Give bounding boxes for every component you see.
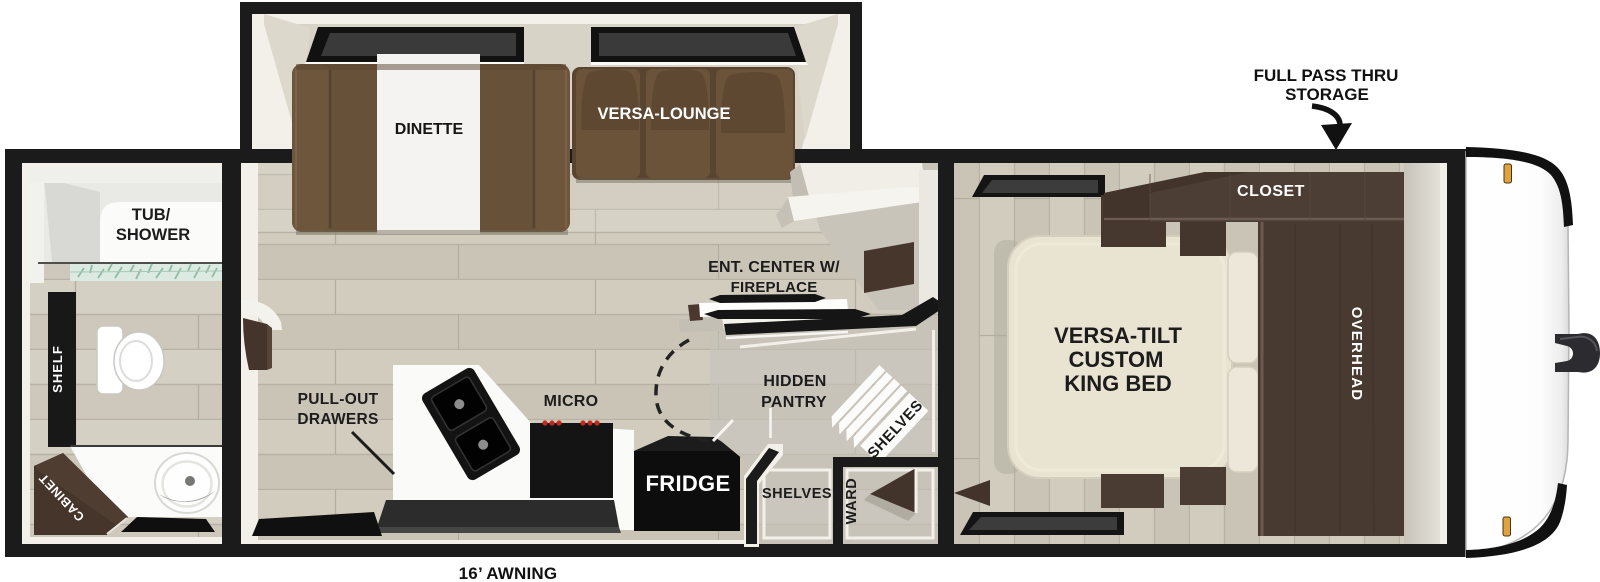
svg-text:PANTRY: PANTRY — [761, 394, 827, 411]
svg-text:DRAWERS: DRAWERS — [297, 411, 378, 428]
svg-text:VERSA-LOUNGE: VERSA-LOUNGE — [598, 105, 731, 123]
svg-text:SHELF: SHELF — [50, 345, 65, 393]
svg-text:WARD: WARD — [844, 478, 860, 525]
svg-text:HIDDEN: HIDDEN — [763, 373, 826, 390]
svg-text:FIREPLACE: FIREPLACE — [731, 279, 818, 296]
svg-text:16’ AWNING: 16’ AWNING — [459, 564, 558, 582]
svg-text:FRIDGE: FRIDGE — [646, 471, 731, 496]
svg-text:TUB/: TUB/ — [132, 206, 171, 224]
svg-text:DINETTE: DINETTE — [395, 121, 464, 138]
svg-text:MICRO: MICRO — [544, 393, 599, 410]
svg-text:OVERHEAD: OVERHEAD — [1348, 307, 1365, 402]
svg-text:FULL PASS THRU: FULL PASS THRU — [1254, 66, 1399, 85]
svg-text:SHOWER: SHOWER — [116, 226, 190, 244]
svg-text:KING BED: KING BED — [1064, 371, 1172, 396]
svg-text:CUSTOM: CUSTOM — [1069, 347, 1164, 372]
svg-text:CLOSET: CLOSET — [1237, 183, 1305, 200]
svg-text:SHELVES: SHELVES — [762, 486, 832, 502]
svg-text:VERSA-TILT: VERSA-TILT — [1054, 323, 1182, 348]
svg-text:STORAGE: STORAGE — [1285, 85, 1369, 104]
svg-text:ENT. CENTER W/: ENT. CENTER W/ — [708, 259, 840, 276]
svg-text:PULL-OUT: PULL-OUT — [298, 391, 379, 408]
